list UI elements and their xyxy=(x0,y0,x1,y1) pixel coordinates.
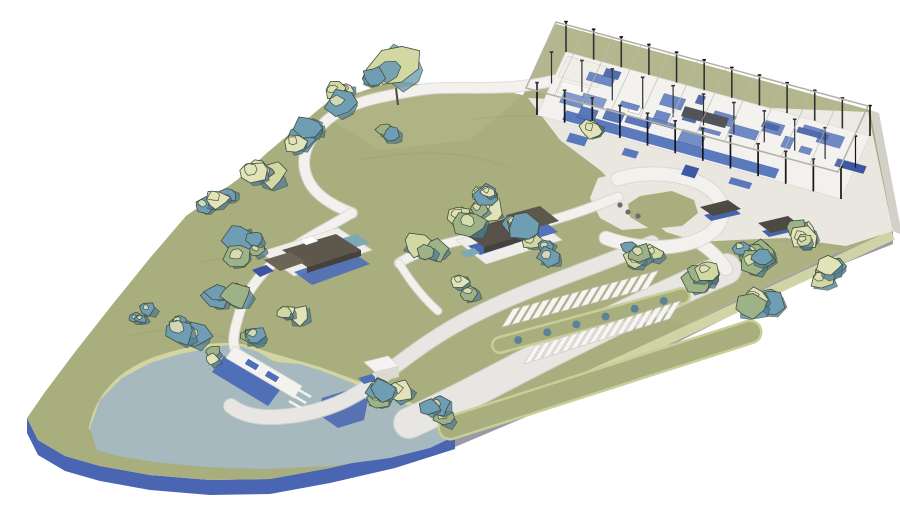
median-bush xyxy=(602,313,610,321)
column-capital xyxy=(564,21,568,23)
site-plan-rendering xyxy=(0,0,900,506)
median-bush xyxy=(572,320,580,328)
median-bush xyxy=(631,305,639,313)
tree-highlight xyxy=(289,137,297,145)
column-capital xyxy=(592,28,596,30)
tree-highlight xyxy=(454,276,461,283)
column-capital xyxy=(702,59,706,61)
median-bush xyxy=(543,328,551,336)
tree-highlight xyxy=(244,163,257,175)
site-plan-canvas xyxy=(0,0,900,506)
tree-highlight xyxy=(585,123,592,131)
median-bush xyxy=(514,336,522,344)
plaza-table xyxy=(635,213,640,218)
column-capital xyxy=(730,67,734,69)
column-capital xyxy=(647,44,651,46)
median-bush xyxy=(660,297,668,305)
plaza-table xyxy=(625,209,630,214)
plaza-table xyxy=(617,202,622,207)
column-capital xyxy=(758,74,762,76)
column-capital xyxy=(675,51,679,53)
column-capital xyxy=(619,36,623,38)
